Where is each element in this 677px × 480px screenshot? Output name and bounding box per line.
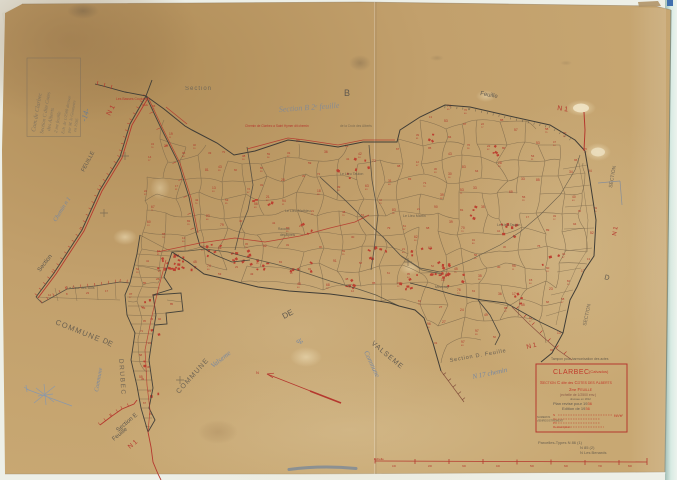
svg-text:84: 84 (448, 135, 452, 139)
svg-text:90: 90 (434, 205, 438, 209)
svg-text:68: 68 (426, 226, 430, 230)
svg-text:48: 48 (342, 210, 346, 214)
svg-text:Les Basses Coutures: Les Basses Coutures (116, 97, 149, 101)
svg-text:64: 64 (475, 169, 479, 173)
svg-text:12: 12 (48, 293, 52, 297)
svg-text:200: 200 (428, 465, 433, 468)
svg-text:B: B (344, 88, 350, 98)
svg-text:39: 39 (337, 185, 341, 189)
svg-text:53: 53 (218, 272, 222, 276)
svg-text:41: 41 (272, 221, 276, 225)
svg-text:41: 41 (346, 157, 350, 161)
svg-text:95: 95 (372, 281, 376, 285)
svg-text:30: 30 (351, 235, 355, 239)
svg-text:28: 28 (281, 178, 285, 182)
svg-text:28: 28 (498, 161, 502, 165)
svg-text:69: 69 (509, 190, 513, 194)
svg-text:95: 95 (428, 146, 432, 150)
svg-text:Le Lieu Taulon: Le Lieu Taulon (497, 223, 520, 227)
svg-text:191 B: 191 B (614, 414, 622, 418)
svg-text:27: 27 (442, 320, 446, 324)
svg-text:98: 98 (504, 306, 508, 310)
svg-text:Tampon pour harmonisation des: Tampon pour harmonisation des actes (551, 357, 609, 361)
svg-text:42: 42 (358, 152, 362, 156)
svg-text:35: 35 (478, 274, 482, 278)
svg-text:53: 53 (536, 141, 540, 145)
svg-text:22: 22 (487, 144, 491, 148)
svg-text:Section: Section (185, 86, 212, 92)
svg-text:36: 36 (498, 292, 502, 296)
svg-text:48: 48 (297, 282, 301, 286)
svg-text:53: 53 (225, 198, 229, 202)
svg-text:88: 88 (500, 118, 504, 122)
svg-text:Chemin de Clarbec a Saint Hyme: Chemin de Clarbec a Saint Hymer dit chem… (245, 124, 309, 128)
svg-text:36: 36 (324, 150, 328, 154)
svg-text:17: 17 (105, 289, 109, 293)
svg-text:27: 27 (439, 305, 443, 309)
svg-text:71: 71 (423, 181, 427, 185)
svg-text:NUMEROS: NUMEROS (537, 415, 551, 419)
svg-text:56: 56 (522, 195, 526, 199)
svg-text:56: 56 (254, 202, 258, 206)
svg-text:35: 35 (481, 205, 485, 209)
svg-text:63: 63 (365, 184, 369, 188)
svg-text:des Aprets: des Aprets (280, 233, 295, 237)
svg-text:30: 30 (497, 265, 501, 269)
svg-text:39: 39 (449, 220, 453, 224)
svg-text:13: 13 (212, 186, 216, 190)
svg-text:95: 95 (182, 151, 186, 155)
svg-text:500: 500 (530, 465, 535, 468)
svg-text:98: 98 (397, 164, 401, 168)
svg-text:26: 26 (156, 277, 160, 281)
svg-text:400: 400 (496, 465, 501, 468)
svg-text:SECTION C dite des COTES DES A: SECTION C dite des COTES DES ALBERTS (540, 380, 613, 385)
svg-text:La Cour des Bois: La Cour des Bois (67, 286, 95, 290)
svg-text:Raucoul: Raucoul (278, 227, 290, 231)
svg-text:33: 33 (521, 177, 525, 181)
svg-text:Le Lieu Taulon: Le Lieu Taulon (340, 172, 363, 176)
svg-text:14: 14 (148, 155, 152, 159)
svg-text:81: 81 (205, 168, 209, 172)
svg-text:74: 74 (447, 104, 451, 108)
svg-text:15: 15 (148, 389, 152, 393)
svg-text:43: 43 (448, 152, 452, 156)
svg-text:39: 39 (440, 193, 444, 197)
svg-text:300: 300 (462, 465, 467, 468)
svg-text:Le Lieu Martin: Le Lieu Martin (403, 214, 426, 218)
svg-text:31: 31 (434, 341, 438, 345)
svg-text:62: 62 (414, 235, 418, 239)
svg-text:96: 96 (574, 158, 578, 162)
svg-text:62: 62 (141, 305, 145, 309)
svg-text:2me FEUILLE: 2me FEUILLE (569, 387, 593, 392)
svg-text:97: 97 (475, 329, 479, 333)
svg-text:23: 23 (549, 287, 553, 291)
svg-text:94: 94 (282, 199, 286, 203)
svg-text:79: 79 (220, 223, 224, 227)
svg-text:700: 700 (598, 465, 603, 468)
svg-text:31: 31 (287, 151, 291, 155)
svg-text:Echelle: Echelle (374, 457, 384, 461)
svg-text:38: 38 (242, 154, 246, 158)
svg-text:55: 55 (143, 281, 147, 285)
svg-text:Mezeray: Mezeray (435, 285, 449, 289)
svg-text:d'ENREGISTREMENT: d'ENREGISTREMENT (537, 419, 564, 423)
svg-text:83: 83 (206, 214, 210, 218)
svg-text:42: 42 (195, 198, 199, 202)
svg-text:52: 52 (590, 231, 594, 235)
svg-text:85: 85 (170, 302, 174, 306)
svg-text:74: 74 (207, 264, 211, 268)
svg-text:(Calvados): (Calvados) (589, 369, 609, 374)
svg-text:31: 31 (562, 252, 566, 256)
svg-text:41: 41 (146, 259, 150, 263)
svg-text:60: 60 (546, 266, 550, 270)
svg-text:100: 100 (392, 465, 397, 468)
svg-text:53: 53 (444, 119, 448, 123)
svg-text:40: 40 (572, 195, 576, 199)
svg-text:24: 24 (460, 308, 464, 312)
svg-text:68: 68 (326, 283, 330, 287)
svg-text:58: 58 (545, 127, 549, 131)
svg-text:94: 94 (573, 222, 577, 226)
svg-text:30: 30 (448, 172, 452, 176)
svg-text:83: 83 (392, 208, 396, 212)
svg-text:43: 43 (218, 165, 222, 169)
svg-text:54: 54 (531, 154, 535, 158)
svg-text:67: 67 (143, 401, 147, 405)
svg-text:85: 85 (536, 178, 540, 182)
svg-text:27: 27 (158, 269, 162, 273)
svg-text:17: 17 (512, 292, 516, 296)
svg-text:60: 60 (147, 220, 151, 224)
svg-text:57: 57 (514, 128, 518, 132)
svg-text:89: 89 (546, 228, 550, 232)
svg-text:62: 62 (263, 244, 267, 248)
svg-text:33: 33 (208, 151, 212, 155)
svg-text:43: 43 (250, 272, 254, 276)
svg-text:76: 76 (537, 244, 541, 248)
svg-text:18: 18 (317, 189, 321, 193)
svg-text:65: 65 (162, 232, 166, 236)
svg-text:67: 67 (151, 205, 155, 209)
svg-text:21: 21 (266, 195, 270, 199)
svg-text:48: 48 (345, 277, 349, 281)
svg-text:73: 73 (372, 159, 376, 163)
svg-text:79: 79 (387, 226, 391, 230)
svg-text:82: 82 (187, 219, 191, 223)
svg-text:600: 600 (564, 465, 569, 468)
svg-text:67: 67 (396, 147, 400, 151)
svg-text:CLARBEC: CLARBEC (553, 369, 590, 376)
svg-text:83: 83 (462, 165, 466, 169)
svg-text:31: 31 (388, 179, 392, 183)
svg-text:Le Lieu Mathieu: Le Lieu Mathieu (285, 209, 311, 213)
svg-text:49: 49 (141, 377, 145, 381)
svg-text:95: 95 (512, 264, 516, 268)
svg-text:97: 97 (463, 122, 467, 126)
svg-text:49: 49 (484, 313, 488, 317)
svg-text:59: 59 (308, 161, 312, 165)
svg-text:76: 76 (457, 288, 461, 292)
svg-text:37: 37 (129, 292, 133, 296)
svg-text:15: 15 (529, 278, 533, 282)
svg-text:83: 83 (408, 177, 412, 181)
svg-text:Edition de 1936: Edition de 1936 (562, 406, 591, 411)
svg-text:45: 45 (454, 267, 458, 271)
svg-text:81: 81 (460, 208, 464, 212)
svg-text:Reinscription: Reinscription (553, 425, 571, 429)
svg-text:34: 34 (569, 170, 573, 174)
svg-text:40: 40 (239, 219, 243, 223)
svg-text:N Les Benards: N Les Benards (580, 450, 606, 455)
svg-text:N: N (256, 370, 259, 375)
svg-text:45: 45 (193, 260, 197, 264)
svg-text:800: 800 (628, 465, 633, 468)
svg-text:53: 53 (460, 188, 464, 192)
svg-text:19: 19 (169, 132, 173, 136)
svg-text:Calv: Calv (142, 103, 149, 107)
svg-text:Parcelles-Types N 86 (1): Parcelles-Types N 86 (1) (538, 440, 583, 445)
svg-text:33: 33 (473, 186, 477, 190)
svg-text:de la Croix des Alberts: de la Croix des Alberts (340, 124, 372, 128)
svg-text:80: 80 (502, 146, 506, 150)
svg-text:70: 70 (461, 226, 465, 230)
svg-text:23: 23 (86, 291, 90, 295)
svg-text:92: 92 (158, 317, 162, 321)
svg-text:91: 91 (333, 259, 337, 263)
svg-text:71: 71 (140, 329, 144, 333)
svg-text:58: 58 (139, 353, 143, 357)
svg-text:97: 97 (461, 340, 465, 344)
svg-text:96: 96 (427, 322, 431, 326)
